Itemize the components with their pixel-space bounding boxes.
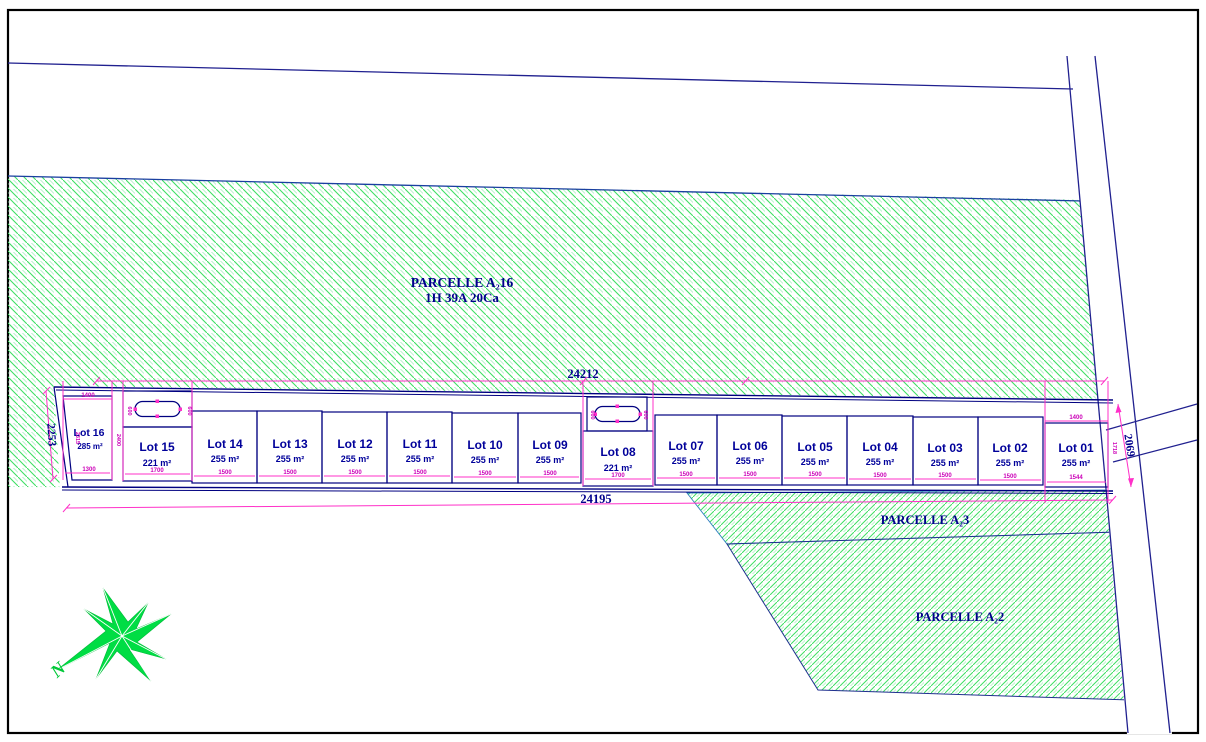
site-plan-drawing: PARCELLE A₂16 1H 39A 20Ca PARCELLE A₂3 P… [0, 0, 1206, 742]
svg-text:255 m²: 255 m² [996, 458, 1025, 468]
svg-text:2315: 2315 [74, 432, 80, 444]
svg-text:255 m²: 255 m² [471, 455, 500, 465]
dim-bottom: 24195 [580, 492, 611, 506]
svg-text:Lot 12: Lot 12 [337, 437, 373, 451]
svg-text:1718: 1718 [1111, 442, 1117, 454]
dim-left: 2253 [44, 423, 58, 447]
svg-text:255 m²: 255 m² [1062, 458, 1091, 468]
svg-text:600: 600 [642, 410, 648, 419]
svg-text:255 m²: 255 m² [341, 454, 370, 464]
svg-text:1500: 1500 [679, 472, 693, 478]
parcelle-a216-name: PARCELLE A₂16 [411, 275, 514, 290]
svg-text:Lot 02: Lot 02 [992, 441, 1028, 455]
svg-text:255 m²: 255 m² [211, 454, 240, 464]
oval2 [595, 407, 640, 422]
parcelle-a22-name: PARCELLE A₂2 [916, 610, 1005, 624]
svg-text:221 m²: 221 m² [604, 463, 633, 473]
svg-text:600: 600 [186, 406, 192, 415]
svg-text:1500: 1500 [478, 471, 492, 477]
svg-text:1700: 1700 [150, 468, 164, 474]
svg-text:255 m²: 255 m² [276, 454, 305, 464]
svg-text:255 m²: 255 m² [931, 458, 960, 468]
svg-text:Lot 14: Lot 14 [207, 437, 243, 451]
parcelle-a23-name: PARCELLE A₂3 [881, 513, 970, 527]
svg-text:1300: 1300 [82, 467, 96, 473]
svg-text:1500: 1500 [938, 473, 952, 479]
svg-text:1700: 1700 [611, 473, 625, 479]
svg-text:255 m²: 255 m² [406, 454, 435, 464]
dim-top: 24212 [567, 367, 598, 381]
parcelle-a216-area: 1H 39A 20Ca [425, 290, 499, 305]
svg-text:600: 600 [126, 406, 132, 415]
svg-text:Lot 15: Lot 15 [139, 440, 175, 454]
svg-text:1500: 1500 [808, 472, 822, 478]
svg-text:Lot 05: Lot 05 [797, 440, 833, 454]
oval1 [135, 402, 180, 417]
svg-text:Lot 07: Lot 07 [668, 439, 704, 453]
svg-text:Lot 08: Lot 08 [600, 445, 636, 459]
svg-text:1500: 1500 [543, 471, 557, 477]
svg-text:Lot 04: Lot 04 [862, 440, 898, 454]
svg-text:1400: 1400 [81, 393, 95, 399]
svg-text:1500: 1500 [218, 470, 232, 476]
svg-text:1500: 1500 [1003, 474, 1017, 480]
svg-text:Lot 06: Lot 06 [732, 439, 768, 453]
svg-text:255 m²: 255 m² [801, 457, 830, 467]
svg-text:285 m²: 285 m² [77, 442, 103, 451]
svg-text:Lot 10: Lot 10 [467, 438, 503, 452]
svg-text:Lot 03: Lot 03 [927, 441, 963, 455]
svg-text:1500: 1500 [413, 470, 427, 476]
svg-text:255 m²: 255 m² [866, 457, 895, 467]
svg-text:1500: 1500 [743, 472, 757, 478]
svg-text:1500: 1500 [873, 473, 887, 479]
svg-text:255 m²: 255 m² [536, 455, 565, 465]
svg-text:1400: 1400 [1069, 415, 1083, 421]
svg-text:221 m²: 221 m² [143, 458, 172, 468]
svg-text:Lot 11: Lot 11 [403, 437, 438, 451]
svg-text:1500: 1500 [283, 470, 297, 476]
svg-text:Lot 13: Lot 13 [272, 437, 308, 451]
svg-text:Lot 09: Lot 09 [532, 438, 568, 452]
svg-text:1544: 1544 [1069, 475, 1083, 481]
svg-text:Lot 01: Lot 01 [1058, 441, 1094, 455]
svg-text:255 m²: 255 m² [736, 456, 765, 466]
svg-text:2400: 2400 [115, 434, 121, 446]
svg-text:255 m²: 255 m² [672, 456, 701, 466]
svg-text:600: 600 [589, 410, 595, 419]
svg-text:1500: 1500 [348, 470, 362, 476]
